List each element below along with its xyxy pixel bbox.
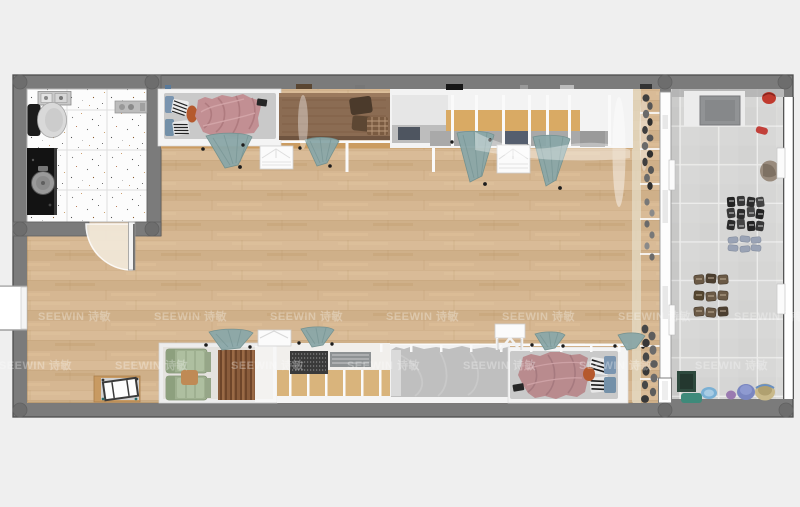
svg-text:SEEWIN 诗敏: SEEWIN 诗敏 [115,358,188,372]
svg-text:SEEWIN 诗敏: SEEWIN 诗敏 [386,309,459,323]
svg-text:SEEWIN 诗敏: SEEWIN 诗敏 [502,309,575,323]
svg-text:SEEWIN 诗敏: SEEWIN 诗敏 [38,309,111,323]
svg-text:SEEWIN 诗敏: SEEWIN 诗敏 [579,358,652,372]
svg-text:SEEWIN 诗敏: SEEWIN 诗敏 [618,309,691,323]
svg-text:SEEWIN 诗敏: SEEWIN 诗敏 [270,309,343,323]
svg-text:SEEWIN 诗敏: SEEWIN 诗敏 [231,358,304,372]
svg-text:SEEWIN 诗敏: SEEWIN 诗敏 [463,358,536,372]
svg-text:SEEWIN 诗敏: SEEWIN 诗敏 [154,309,227,323]
svg-text:SEEWIN 诗敏: SEEWIN 诗敏 [347,358,420,372]
svg-text:SEEWIN 诗敏: SEEWIN 诗敏 [0,358,72,372]
svg-text:SEEWIN 诗敏: SEEWIN 诗敏 [695,358,768,372]
svg-text:SEEWIN 诗敏: SEEWIN 诗敏 [734,309,800,323]
